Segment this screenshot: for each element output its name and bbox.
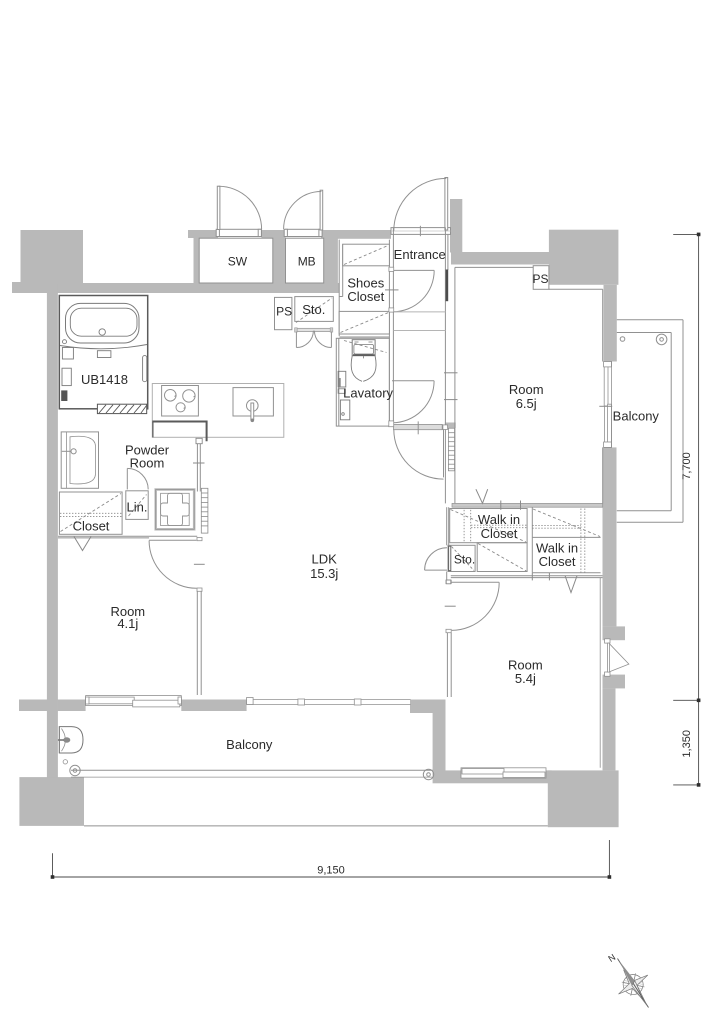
svg-text:Closet: Closet xyxy=(481,526,518,541)
svg-text:SW: SW xyxy=(228,255,248,269)
svg-text:Closet: Closet xyxy=(347,289,384,304)
svg-text:MB: MB xyxy=(298,255,316,269)
svg-text:7,700: 7,700 xyxy=(681,452,693,480)
svg-text:Room: Room xyxy=(509,382,544,397)
svg-text:PS: PS xyxy=(276,305,292,319)
svg-text:Balcony: Balcony xyxy=(226,737,273,752)
svg-text:5.4j: 5.4j xyxy=(515,671,536,686)
svg-text:Balcony: Balcony xyxy=(613,409,660,424)
svg-text:PS: PS xyxy=(532,272,548,286)
svg-text:Walk in: Walk in xyxy=(536,540,578,555)
svg-text:4.1j: 4.1j xyxy=(117,616,138,631)
svg-text:Closet: Closet xyxy=(73,519,110,534)
svg-text:Sto.: Sto. xyxy=(454,552,475,566)
svg-text:9,150: 9,150 xyxy=(317,865,345,877)
svg-text:6.5j: 6.5j xyxy=(516,396,537,411)
svg-text:Lin.: Lin. xyxy=(127,500,148,515)
svg-text:15.3j: 15.3j xyxy=(310,566,338,581)
svg-text:1,350: 1,350 xyxy=(681,730,693,758)
svg-text:Lavatory: Lavatory xyxy=(343,385,393,400)
svg-text:Entrance: Entrance xyxy=(394,247,446,262)
svg-text:Closet: Closet xyxy=(539,554,576,569)
svg-text:Sto.: Sto. xyxy=(302,302,325,317)
svg-text:Room: Room xyxy=(130,455,165,470)
svg-text:LDK: LDK xyxy=(312,552,338,567)
svg-text:UB1418: UB1418 xyxy=(81,372,128,387)
